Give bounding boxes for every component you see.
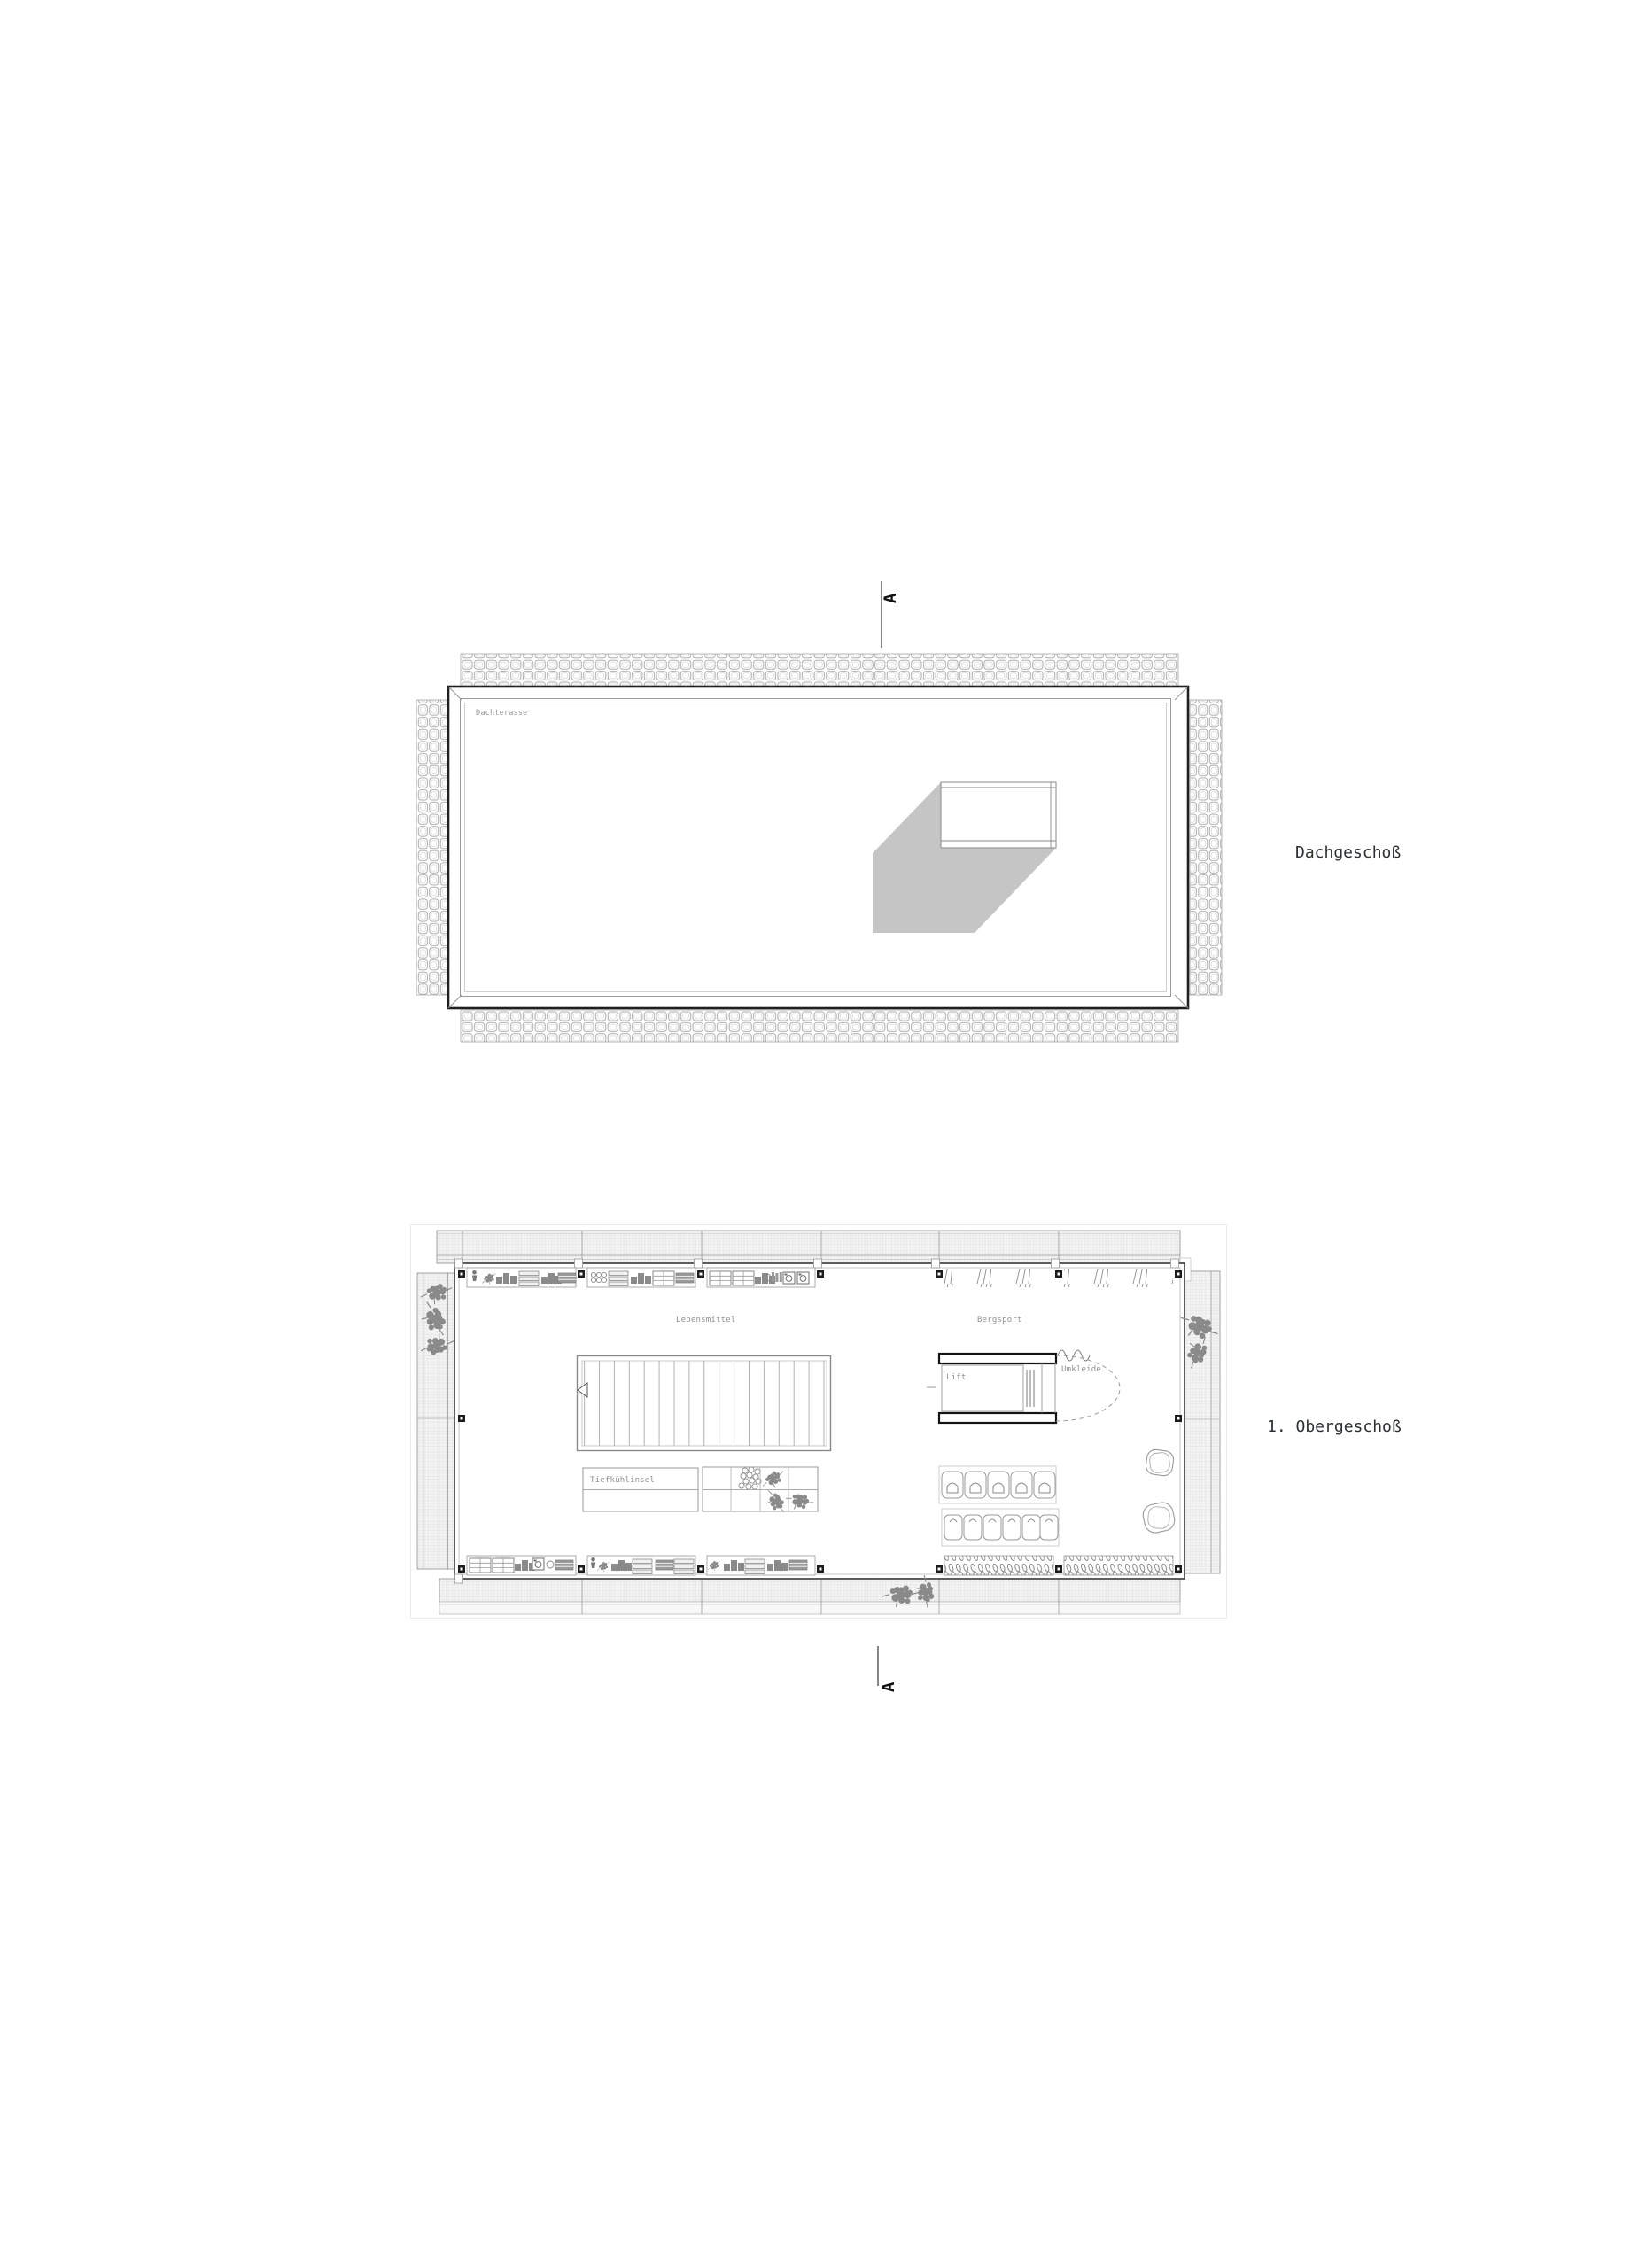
zone-label-groceries: Lebensmittel bbox=[676, 1316, 735, 1324]
roof-terrace-label: Dachterasse bbox=[476, 709, 528, 718]
stair bbox=[578, 1356, 831, 1451]
lift-label: Lift bbox=[946, 1373, 966, 1382]
first-floor-plan: Lebensmittel Bergsport Tiefkühlinsel bbox=[411, 1225, 1227, 1619]
produce-tables bbox=[703, 1467, 818, 1516]
roof-tile-apron-right bbox=[1190, 700, 1222, 995]
changing-room-label: Umkleide bbox=[1061, 1365, 1101, 1374]
section-letter-top: A bbox=[881, 593, 900, 603]
freezer-island-label: Tiefkühlinsel bbox=[590, 1476, 655, 1485]
roof-tile-apron-left bbox=[416, 700, 448, 995]
shelf-run-bottom bbox=[467, 1556, 815, 1575]
first-floor-label: 1. Obergeschoß bbox=[1267, 1417, 1402, 1436]
roof-tile-apron-bottom bbox=[461, 1010, 1178, 1042]
chair-upper bbox=[1145, 1449, 1175, 1477]
architectural-sheet: Dachterasse Dachgeschoß A bbox=[0, 0, 1639, 2268]
section-marker-bottom: A bbox=[878, 1646, 898, 1692]
balcony-right bbox=[1180, 1258, 1220, 1573]
roof-parapet bbox=[448, 687, 1188, 1008]
roof-tile-apron-top bbox=[461, 654, 1178, 687]
stall-row-lower bbox=[942, 1509, 1059, 1546]
roof-floor-label: Dachgeschoß bbox=[1295, 843, 1401, 862]
section-marker-top: A bbox=[881, 581, 900, 648]
roof-plan: Dachterasse bbox=[416, 654, 1222, 1042]
section-letter-bottom: A bbox=[879, 1682, 898, 1692]
shelf-run-top bbox=[467, 1268, 815, 1287]
balcony-top bbox=[437, 1231, 1180, 1263]
balcony-bottom bbox=[439, 1579, 1180, 1614]
zone-label-mountain-sports: Bergsport bbox=[977, 1316, 1022, 1324]
stall-row-upper bbox=[939, 1466, 1056, 1503]
freezer-island: Tiefkühlinsel bbox=[583, 1468, 698, 1511]
